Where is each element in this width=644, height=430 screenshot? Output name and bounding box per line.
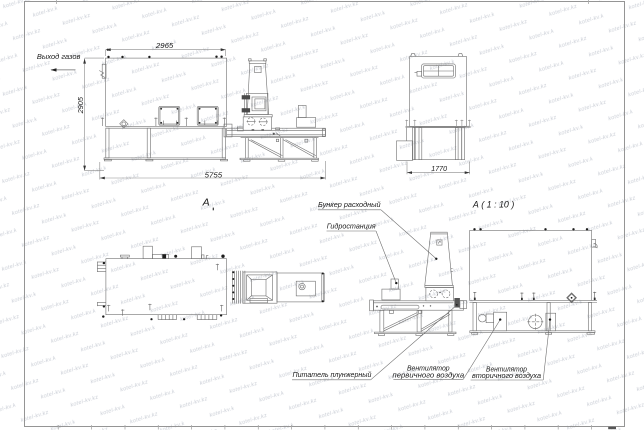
svg-text:Выход газов: Выход газов (37, 52, 81, 61)
svg-text:А: А (202, 197, 210, 209)
svg-text:Питатель плунжерный: Питатель плунжерный (293, 370, 372, 379)
svg-text:первичного воздуха: первичного воздуха (392, 370, 464, 379)
svg-text:1770: 1770 (431, 164, 447, 173)
svg-text:Бункер расходный: Бункер расходный (318, 200, 381, 209)
svg-text:Гидростанция: Гидростанция (327, 221, 376, 230)
svg-text:вторичного воздуха: вторичного воздуха (472, 371, 541, 380)
svg-text:5755: 5755 (205, 170, 224, 179)
svg-text:2965: 2965 (155, 41, 175, 50)
svg-text:2905: 2905 (76, 96, 85, 114)
svg-text:А ( 1 : 10 ): А ( 1 : 10 ) (472, 200, 514, 210)
